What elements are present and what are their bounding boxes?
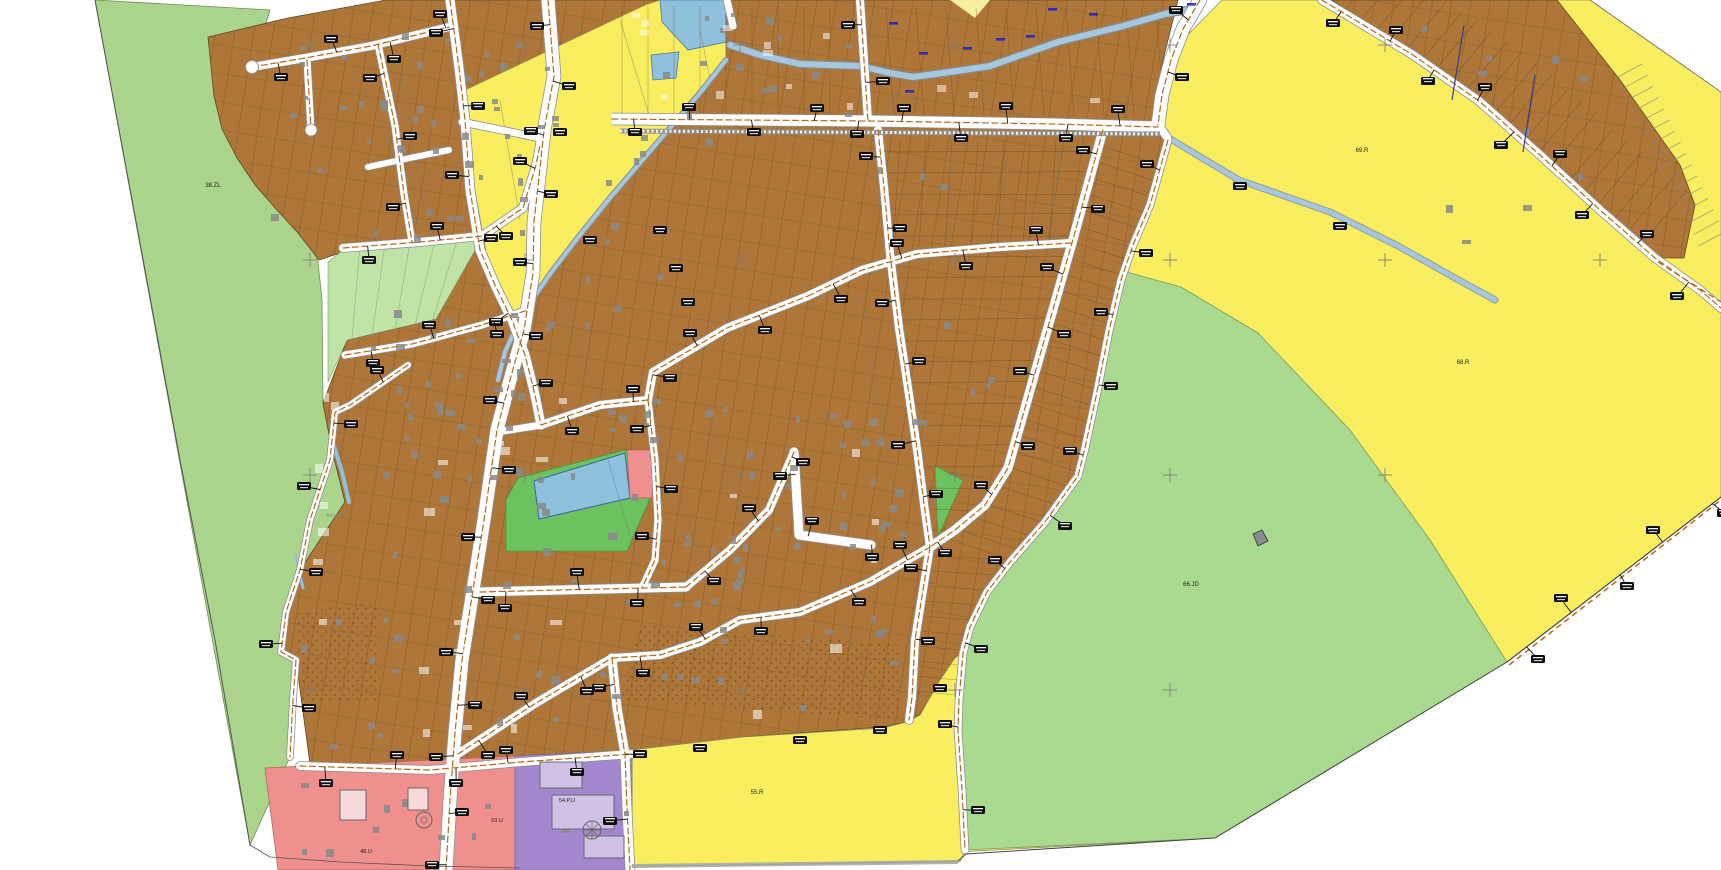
svg-text:55.R: 55.R	[751, 790, 764, 796]
svg-text:53.U: 53.U	[491, 818, 503, 824]
svg-text:48.U: 48.U	[360, 849, 372, 855]
svg-text:69.R: 69.R	[1356, 148, 1369, 154]
svg-text:Arkusz 1: Arkusz 1	[326, 513, 346, 519]
svg-text:68.R: 68.R	[1457, 360, 1470, 366]
svg-text:54.P,U: 54.P,U	[559, 798, 575, 804]
svg-text:66.JD: 66.JD	[1183, 582, 1199, 588]
svg-text:38.ZL: 38.ZL	[205, 183, 221, 189]
